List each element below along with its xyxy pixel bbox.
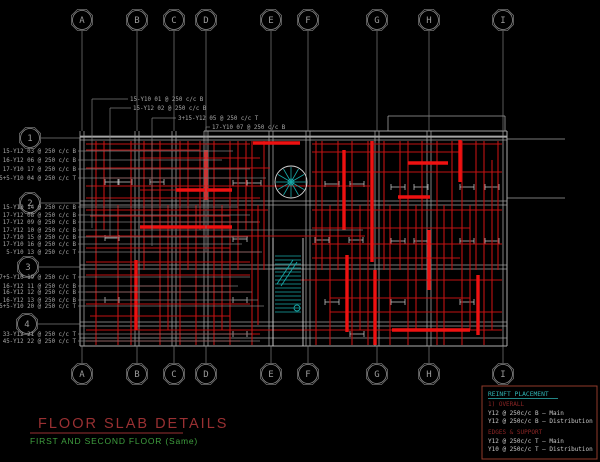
- rebar-label: 17-Y12 08 @ 250 c/c B: [3, 213, 77, 219]
- grid-bubble-row3-label: 3: [25, 263, 30, 273]
- rebar-label: 7+5-Y10 19 @ 250 c/c T: [0, 275, 77, 281]
- grid-bubble-b-top-label: B: [134, 16, 139, 26]
- rebar-label: 15-Y12 03 @ 250 c/c B: [3, 149, 77, 155]
- rebar-lines: [86, 140, 502, 345]
- legend-item: Y12 @ 250c/c B – Main: [488, 410, 564, 417]
- grid-bubble-f-bottom-label: F: [305, 370, 310, 380]
- rebar-label: 5+5-Y10 20 @ 250 c/c T: [0, 304, 77, 310]
- rebar-label: 17-Y12 10 @ 250 c/c B: [3, 228, 77, 234]
- grid-bubble-f-top-label: F: [305, 16, 310, 26]
- rebar-label: 3+15-Y12 05 @ 250 c/c T: [178, 116, 259, 122]
- legend-section-title: EDGES & SUPPORT: [488, 429, 543, 436]
- cad-canvas[interactable]: AABBCCDDEEFFGGHHII1234 15-Y10 01 @ 250 c…: [0, 0, 600, 462]
- grid-bubble-i-top-label: I: [500, 16, 505, 26]
- drawing-title: FLOOR SLAB DETAILS: [38, 416, 228, 432]
- rebar-label: 17-Y10 07 @ 250 c/c B: [212, 125, 286, 131]
- grid-bubble-c-bottom-label: C: [171, 370, 176, 380]
- grid-bubble-g-bottom-label: G: [374, 370, 379, 380]
- legend-item: Y12 @ 250c/c B – Distribution: [488, 418, 593, 425]
- rebar-label: 5+5-Y10 04 @ 250 c/c T: [0, 176, 77, 182]
- rebar-label: 17-Y10 17 @ 250 c/c B: [3, 167, 77, 173]
- rebar-label: 45-Y12 22 @ 250 c/c T: [3, 339, 77, 345]
- legend-header: REINFT PLACEMENT: [488, 391, 549, 398]
- rebar-annotations: 15-Y10 01 @ 250 c/c B15-Y12 02 @ 250 c/c…: [0, 97, 363, 345]
- grid-bubble-c-top-label: C: [171, 16, 176, 26]
- rebar-label: 15-Y12 02 @ 250 c/c B: [133, 106, 207, 112]
- grid-bubble-e-top-label: E: [268, 16, 273, 26]
- title-block: FLOOR SLAB DETAILS FIRST AND SECOND FLOO…: [30, 416, 228, 446]
- stair-features: [273, 166, 307, 346]
- grid-bubble-b-bottom-label: B: [134, 370, 139, 380]
- rebar-label: 17-Y10 16 @ 250 c/c B: [3, 242, 77, 248]
- rebar-label: 5-Y10 13 @ 250 c/c T: [6, 250, 76, 256]
- rebar-label: 33-Y12 21 @ 250 c/c T: [3, 332, 77, 338]
- legend-section-title: 1) OVERALL: [488, 401, 525, 408]
- grid-bubble-a-bottom-label: A: [79, 370, 85, 380]
- grid-bubble-d-bottom-label: D: [203, 370, 208, 380]
- legend-item: Y10 @ 250c/c T – Distribution: [488, 446, 593, 453]
- rebar-label: 17-Y10 15 @ 250 c/c B: [3, 235, 77, 241]
- legend-item: Y12 @ 250c/c T – Main: [488, 438, 564, 445]
- rebar-label: 16-Y12 12 @ 250 c/c B: [3, 290, 77, 296]
- legend-box: REINFT PLACEMENT 1) OVERALLY12 @ 250c/c …: [482, 386, 597, 459]
- grid-bubble-h-top-label: H: [426, 16, 431, 26]
- grid-bubble-i-bottom-label: I: [500, 370, 505, 380]
- rebar-label: 15-Y10 01 @ 250 c/c B: [130, 97, 204, 103]
- rebar-label: 17-Y12 09 @ 250 c/c B: [3, 220, 77, 226]
- grid-bubble-h-bottom-label: H: [426, 370, 431, 380]
- grid-bubble-d-top-label: D: [203, 16, 208, 26]
- grid-bubble-e-bottom-label: E: [268, 370, 273, 380]
- grid-bubble-g-top-label: G: [374, 16, 379, 26]
- grid-bubble-row4-label: 4: [24, 320, 29, 330]
- grid-bubble-row1-label: 1: [27, 134, 32, 144]
- drawing-subtitle: FIRST AND SECOND FLOOR (Same): [30, 436, 198, 446]
- cad-sheet: AABBCCDDEEFFGGHHII1234 15-Y10 01 @ 250 c…: [0, 0, 600, 462]
- legend-items: 1) OVERALLY12 @ 250c/c B – MainY12 @ 250…: [488, 401, 593, 453]
- rebar-label: 15-Y10 14 @ 250 c/c B: [3, 205, 77, 211]
- grid-bubble-a-top-label: A: [79, 16, 85, 26]
- rebar-label: 16-Y12 06 @ 250 c/c B: [3, 158, 77, 164]
